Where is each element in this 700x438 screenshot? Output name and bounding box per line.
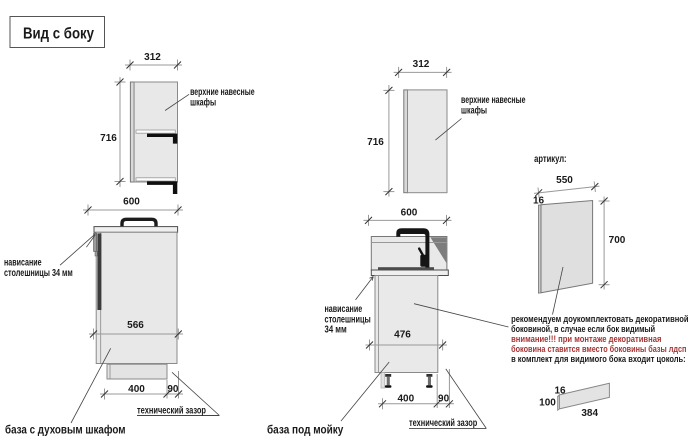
svg-text:34 мм: 34 мм — [325, 324, 347, 335]
svg-text:шкафы: шкафы — [461, 104, 487, 116]
svg-text:600: 600 — [401, 208, 418, 219]
svg-text:700: 700 — [609, 235, 626, 246]
svg-text:в комплект для видимого бока в: в комплект для видимого бока входит цоко… — [511, 354, 686, 365]
svg-text:16: 16 — [554, 385, 566, 396]
svg-text:артикул:: артикул: — [534, 154, 567, 165]
svg-text:база с духовым шкафом: база с духовым шкафом — [5, 423, 126, 437]
svg-text:технический зазор: технический зазор — [409, 418, 477, 429]
svg-text:столешницы 34 мм: столешницы 34 мм — [4, 268, 73, 279]
svg-text:Вид с боку: Вид с боку — [23, 26, 94, 43]
svg-text:400: 400 — [128, 384, 145, 395]
svg-text:312: 312 — [144, 52, 161, 63]
svg-text:550: 550 — [556, 175, 573, 186]
svg-text:база под мойку: база под мойку — [267, 423, 344, 437]
svg-text:шкафы: шкафы — [190, 97, 216, 109]
svg-text:716: 716 — [100, 133, 117, 144]
svg-text:90: 90 — [438, 393, 450, 404]
svg-text:верхние навесные: верхние навесные — [461, 95, 526, 106]
svg-text:716: 716 — [367, 137, 384, 148]
svg-text:100: 100 — [539, 398, 556, 409]
svg-text:600: 600 — [123, 197, 140, 208]
svg-text:400: 400 — [397, 393, 414, 404]
svg-text:верхние навесные: верхние навесные — [190, 87, 255, 98]
svg-text:476: 476 — [394, 329, 411, 340]
svg-text:технический зазор: технический зазор — [137, 405, 206, 416]
svg-text:312: 312 — [413, 59, 430, 70]
svg-text:90: 90 — [167, 384, 179, 395]
svg-text:384: 384 — [581, 408, 598, 419]
svg-text:566: 566 — [127, 320, 144, 331]
